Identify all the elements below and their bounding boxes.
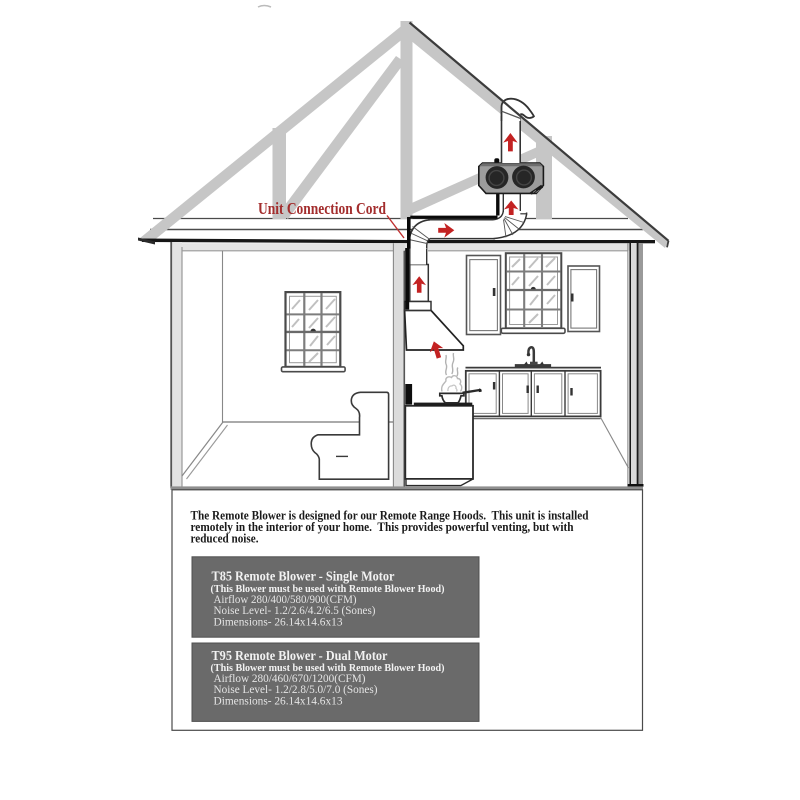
svg-text:Dimensions- 26.14x14.6x13: Dimensions- 26.14x14.6x13: [214, 615, 343, 629]
svg-text:Unit Connection Cord: Unit Connection Cord: [258, 199, 386, 218]
svg-text:T95 Remote Blower - Dual Motor: T95 Remote Blower - Dual Motor: [212, 648, 388, 663]
svg-text:reduced noise.: reduced noise.: [191, 532, 259, 546]
svg-text:T85 Remote Blower - Single Mot: T85 Remote Blower - Single Motor: [212, 569, 395, 584]
svg-text:Dimensions- 26.14x14.6x13: Dimensions- 26.14x14.6x13: [214, 693, 343, 707]
